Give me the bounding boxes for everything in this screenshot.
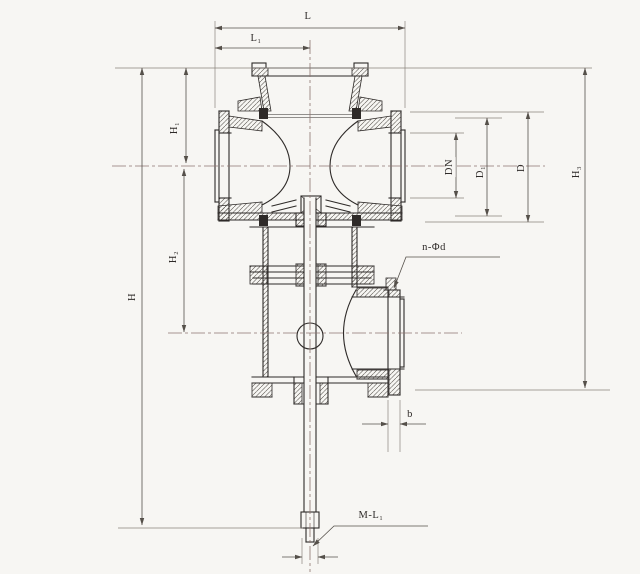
dim-label-h: H bbox=[128, 293, 139, 301]
leader-n-phi-d bbox=[394, 257, 500, 288]
dim-label-d1: D₁ bbox=[476, 166, 487, 178]
leader-label-m-l1: M-L₁ bbox=[359, 511, 384, 522]
dim-label-l: L bbox=[305, 12, 312, 23]
valve-engineering-drawing: L L₁ H H₁ H₂ DN D₁ D H₃ n-Φd b M-L₁ bbox=[0, 0, 640, 574]
dim-label-b: b bbox=[407, 410, 413, 421]
lower-valve-body bbox=[250, 227, 404, 404]
leader-lines bbox=[313, 257, 500, 546]
leader-m-l1 bbox=[313, 526, 428, 546]
dim-label-h2: H₂ bbox=[169, 251, 180, 263]
centerlines bbox=[112, 40, 545, 572]
dim-label-l1: L₁ bbox=[250, 34, 261, 45]
leader-label-n-phi-d: n-Φd bbox=[422, 243, 446, 254]
drawing-canvas bbox=[0, 0, 640, 574]
dim-label-h3: H₃ bbox=[572, 166, 583, 178]
dim-label-d: D bbox=[517, 164, 528, 172]
dim-label-dn: DN bbox=[445, 157, 456, 177]
dim-label-h1: H₁ bbox=[170, 122, 181, 134]
